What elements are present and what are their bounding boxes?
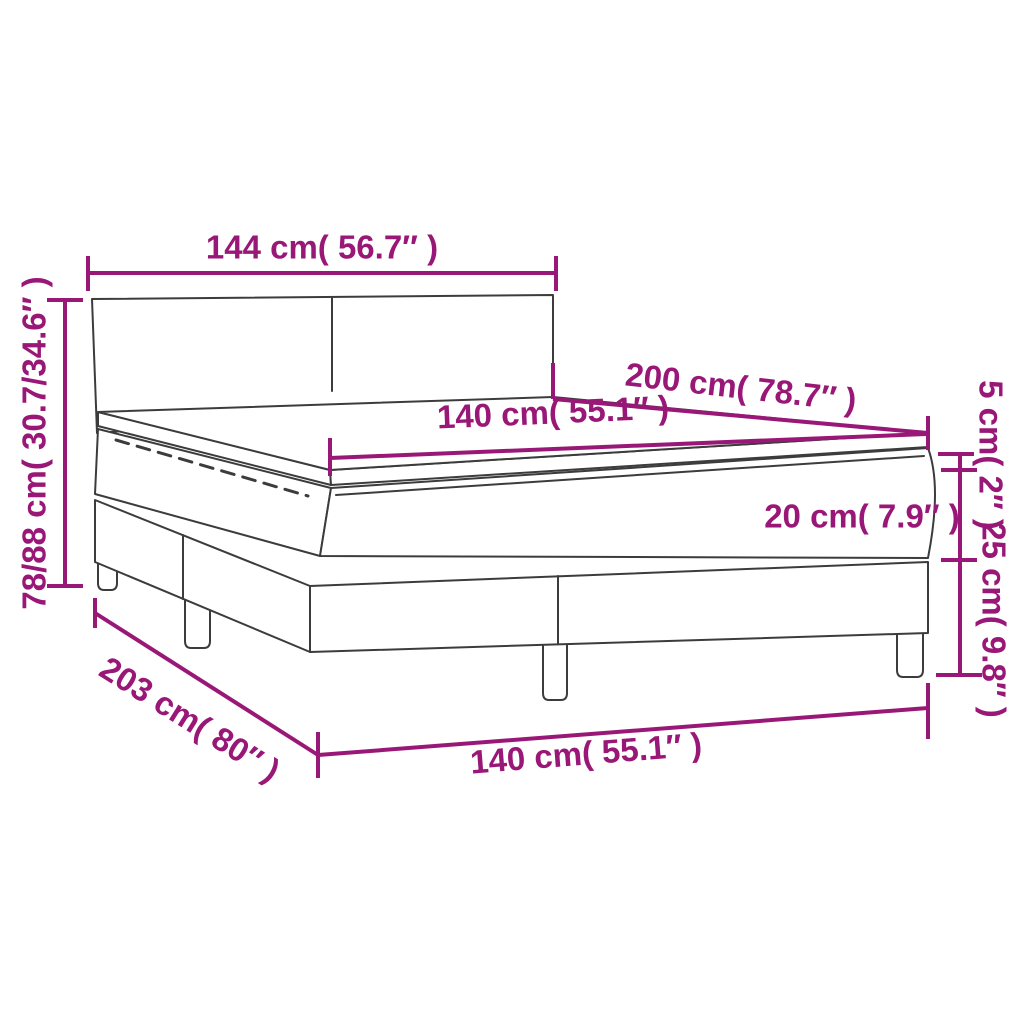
dim-base-width-label: 140 cm( 55.1″ )	[469, 725, 703, 780]
bed-dimension-diagram: 144 cm( 56.7″ ) 78/88 cm( 30.7/34.6″ ) 2…	[0, 0, 1024, 1024]
dim-headboard-width-label: 144 cm( 56.7″ )	[206, 229, 438, 266]
dim-base-height-label: 25 cm( 9.8″ )	[976, 522, 1013, 718]
dim-bed-height-label: 78/88 cm( 30.7/34.6″ )	[16, 276, 53, 609]
dim-topper-thickness-label: 5 cm( 2″ )	[973, 380, 1010, 530]
diagram-canvas: 144 cm( 56.7″ ) 78/88 cm( 30.7/34.6″ ) 2…	[0, 0, 1024, 1024]
dim-mattress-thickness-label: 20 cm( 7.9″ )	[764, 498, 960, 535]
base-right-face	[310, 562, 928, 652]
bed-leg-mid-front	[543, 640, 567, 700]
dim-base-length-label: 203 cm( 80″ )	[93, 649, 286, 789]
